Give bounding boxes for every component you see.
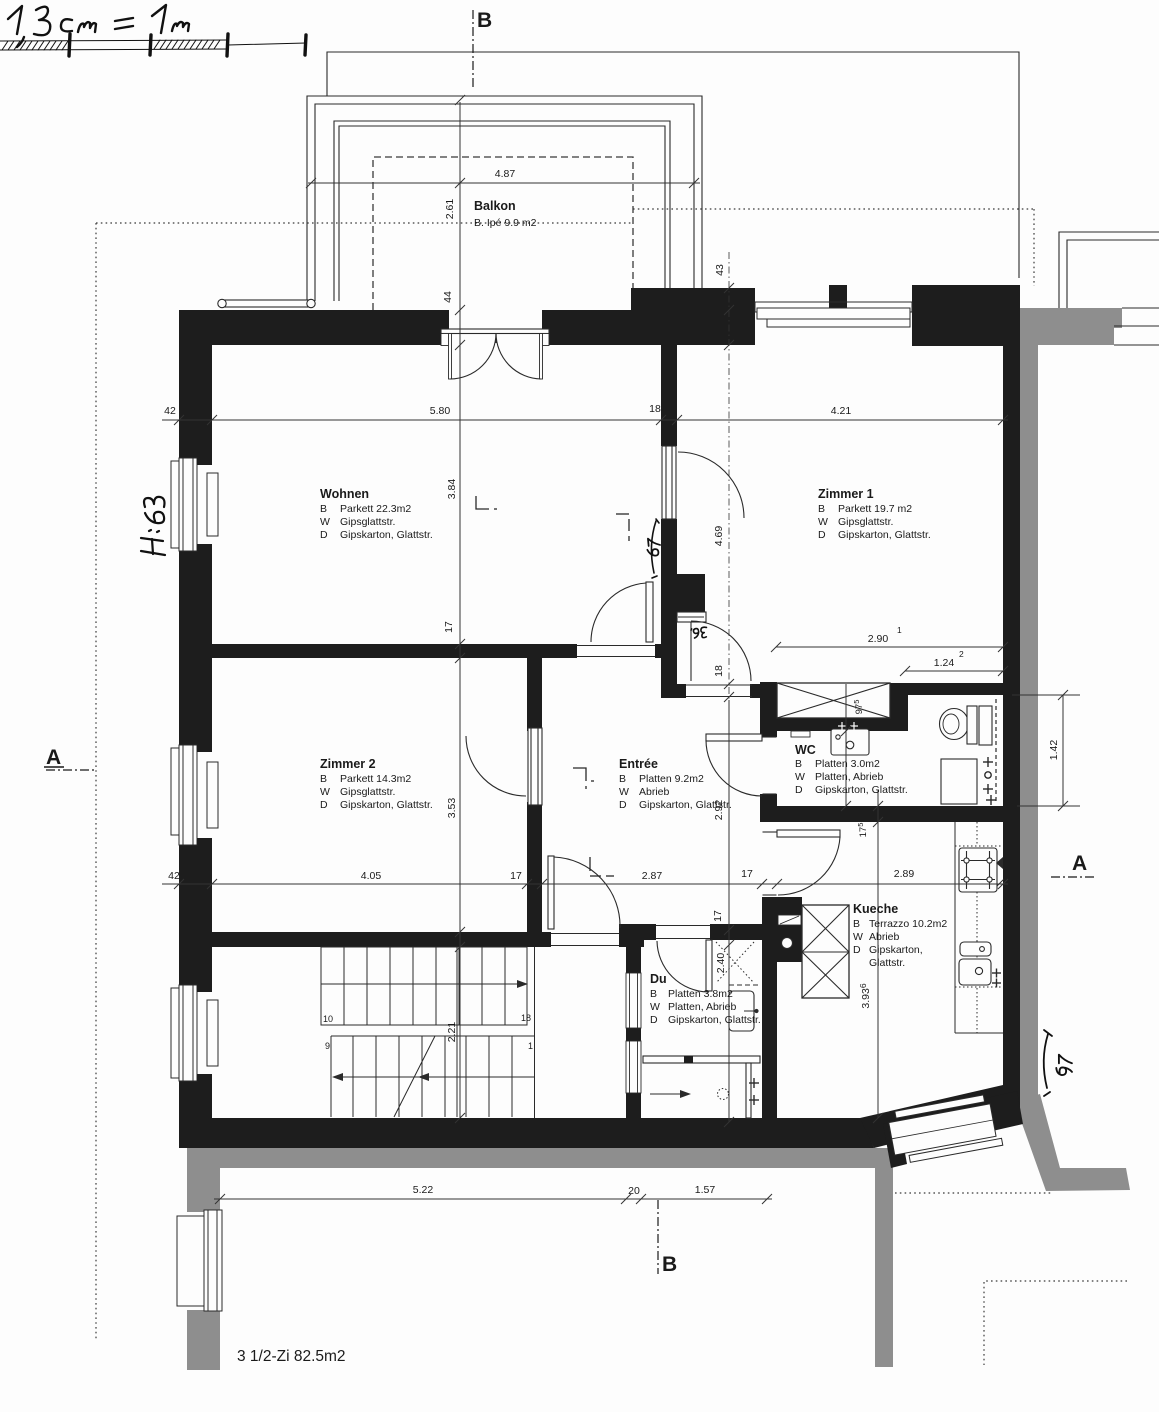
svg-text:17: 17: [741, 868, 753, 880]
svg-text:42: 42: [168, 870, 180, 882]
svg-text:Kueche: Kueche: [853, 902, 898, 916]
svg-text:4.05: 4.05: [361, 870, 382, 882]
svg-text:1: 1: [528, 1041, 533, 1051]
svg-text:2.90: 2.90: [868, 633, 889, 645]
svg-text:4.69: 4.69: [713, 526, 725, 547]
svg-text:WAbrieb: WAbrieb: [853, 931, 900, 943]
svg-text:2: 2: [959, 649, 964, 659]
svg-text:17: 17: [510, 870, 522, 882]
svg-text:17: 17: [712, 910, 724, 922]
svg-text:2.21: 2.21: [446, 1022, 458, 1043]
svg-text:5.22: 5.22: [413, 1184, 434, 1196]
svg-text:42: 42: [164, 405, 176, 417]
svg-text:9: 9: [325, 1041, 330, 1051]
svg-text:18: 18: [649, 403, 661, 415]
svg-text:B: B: [477, 9, 492, 32]
svg-text:2.40: 2.40: [715, 953, 727, 974]
svg-text:1.42: 1.42: [1048, 740, 1060, 761]
svg-text:3.84: 3.84: [446, 479, 458, 500]
svg-text:4.21: 4.21: [831, 405, 852, 417]
svg-text:3.53: 3.53: [446, 798, 458, 819]
svg-text:Glattstr.: Glattstr.: [869, 957, 905, 969]
svg-text:B: B: [662, 1253, 677, 1276]
svg-text:Zimmer 1: Zimmer 1: [818, 487, 874, 501]
svg-text:Balkon: Balkon: [474, 199, 516, 213]
svg-text:Du: Du: [650, 972, 667, 986]
svg-text:3 1/2-Zi 82.5m2: 3 1/2-Zi 82.5m2: [237, 1348, 346, 1365]
svg-text:4.87: 4.87: [495, 168, 516, 180]
svg-text:B. Ipé 9.9 m2: B. Ipé 9.9 m2: [474, 217, 537, 229]
svg-text:WAbrieb: WAbrieb: [619, 786, 670, 798]
svg-text:5.80: 5.80: [430, 405, 451, 417]
svg-text:2.87: 2.87: [642, 870, 663, 882]
svg-text:2.61: 2.61: [444, 199, 456, 220]
svg-text:1.57: 1.57: [695, 1184, 716, 1196]
svg-text:A: A: [1072, 852, 1087, 875]
svg-text:1: 1: [897, 625, 902, 635]
svg-text:2.89: 2.89: [894, 868, 915, 880]
svg-text:1.24: 1.24: [934, 657, 955, 669]
svg-text:17: 17: [443, 621, 455, 633]
svg-text:Zimmer 2: Zimmer 2: [320, 757, 376, 771]
svg-text:43: 43: [714, 264, 726, 276]
svg-text:WC: WC: [795, 743, 816, 757]
svg-text:44: 44: [442, 291, 454, 303]
svg-text:Entrée: Entrée: [619, 757, 658, 771]
svg-text:A: A: [46, 746, 61, 769]
svg-text:10: 10: [323, 1014, 333, 1024]
svg-text:Wohnen: Wohnen: [320, 487, 369, 501]
svg-text:18: 18: [521, 1013, 531, 1023]
svg-text:20: 20: [628, 1185, 640, 1197]
svg-text:18: 18: [713, 665, 725, 677]
